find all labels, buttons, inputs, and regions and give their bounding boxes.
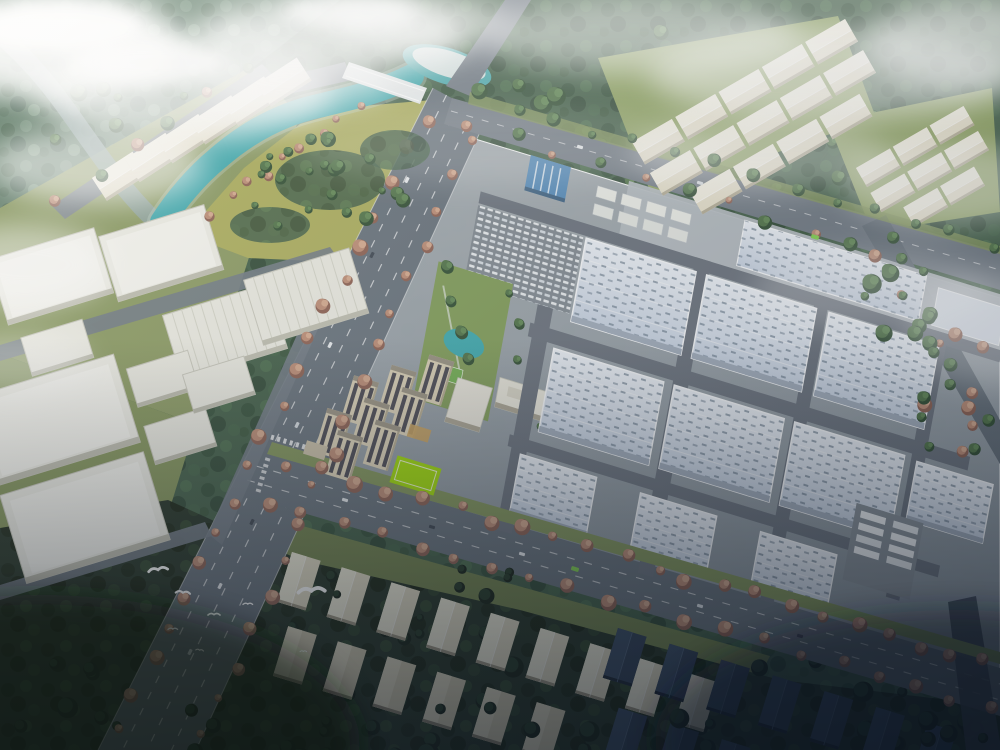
rendering-canvas <box>0 0 1000 750</box>
color-grade <box>0 0 1000 750</box>
scene-rendering <box>0 0 1000 750</box>
